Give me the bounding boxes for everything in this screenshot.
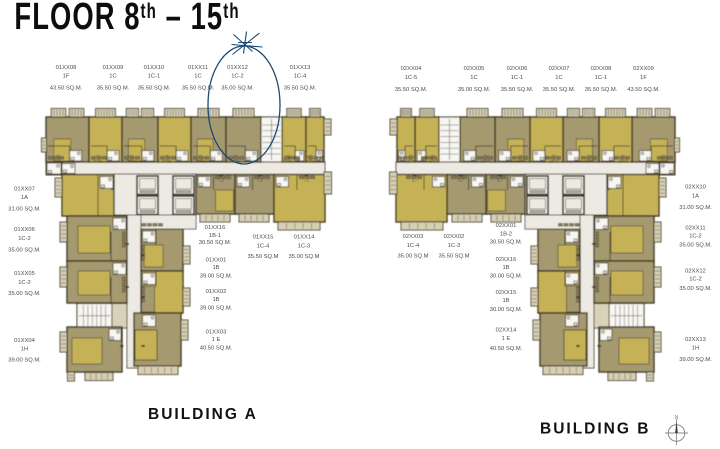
svg-text:35.50 SQ.M: 35.50 SQ.M xyxy=(439,254,470,260)
svg-text:30.00 SQ.M.: 30.00 SQ.M. xyxy=(490,307,523,313)
svg-text:1C-5: 1C-5 xyxy=(405,75,418,81)
svg-text:35.00 SQ.M.: 35.00 SQ.M. xyxy=(679,286,712,292)
svg-text:02XX11: 02XX11 xyxy=(685,226,705,232)
svg-text:35.00 SQ.M.: 35.00 SQ.M. xyxy=(458,87,491,93)
svg-text:02XX05: 02XX05 xyxy=(464,66,485,72)
svg-text:35.00 SQ.M.: 35.00 SQ.M. xyxy=(8,291,41,297)
svg-text:1C-3: 1C-3 xyxy=(298,244,311,250)
svg-text:02XX02: 02XX02 xyxy=(444,234,465,240)
svg-text:01XX13: 01XX13 xyxy=(290,65,311,71)
svg-text:1C: 1C xyxy=(555,75,562,81)
svg-text:1B-2: 1B-2 xyxy=(500,232,512,238)
svg-text:1C-2: 1C-2 xyxy=(689,277,702,283)
svg-text:01XX14: 01XX14 xyxy=(294,235,315,241)
svg-text:02XX08: 02XX08 xyxy=(591,66,612,72)
svg-text:1C-2: 1C-2 xyxy=(18,236,31,242)
svg-text:35.50 SQ.M: 35.50 SQ.M xyxy=(248,254,279,260)
svg-text:30.00 SQ.M.: 30.00 SQ.M. xyxy=(490,274,523,280)
svg-text:02XX09: 02XX09 xyxy=(633,66,654,72)
svg-text:01XX05: 01XX05 xyxy=(14,271,35,277)
svg-text:1A: 1A xyxy=(21,195,28,201)
svg-text:39.00 SQ.M.: 39.00 SQ.M. xyxy=(8,358,41,364)
svg-text:1C-1: 1C-1 xyxy=(595,75,608,81)
svg-text:02XX14: 02XX14 xyxy=(496,328,517,334)
svg-text:1C-2: 1C-2 xyxy=(231,74,244,80)
svg-text:1B: 1B xyxy=(502,265,509,271)
svg-text:FLOOR 8th – 15th: FLOOR 8th – 15th xyxy=(14,0,239,38)
svg-text:1F: 1F xyxy=(640,75,647,81)
svg-text:BUILDING B: BUILDING B xyxy=(540,421,650,438)
svg-text:39.00 SQ.M.: 39.00 SQ.M. xyxy=(679,357,712,363)
svg-text:35.50 SQ.M.: 35.50 SQ.M. xyxy=(284,86,317,92)
svg-text:02XX12: 02XX12 xyxy=(685,269,706,275)
svg-text:1C-4: 1C-4 xyxy=(257,244,270,250)
svg-text:1C-3: 1C-3 xyxy=(448,243,461,249)
svg-text:01XX01: 01XX01 xyxy=(206,258,227,264)
svg-text:31.00 SQ.M.: 31.00 SQ.M. xyxy=(8,207,41,213)
svg-text:1F: 1F xyxy=(63,74,70,80)
svg-text:1C: 1C xyxy=(470,75,477,81)
svg-text:35.50 SQ.M.: 35.50 SQ.M. xyxy=(138,86,171,92)
svg-text:1C-1: 1C-1 xyxy=(511,75,524,81)
svg-text:01XX09: 01XX09 xyxy=(103,65,124,71)
svg-text:43.50 SQ.M.: 43.50 SQ.M. xyxy=(50,86,83,92)
svg-text:35.00 SQ.M.: 35.00 SQ.M. xyxy=(221,86,254,92)
svg-text:02XX03: 02XX03 xyxy=(403,234,424,240)
svg-text:02XX01: 02XX01 xyxy=(496,223,517,229)
svg-text:35.50 SQ.M.: 35.50 SQ.M. xyxy=(543,87,576,93)
svg-text:1C-2: 1C-2 xyxy=(689,234,702,240)
svg-text:35.50 SQ.M.: 35.50 SQ.M. xyxy=(395,87,428,93)
svg-text:1A: 1A xyxy=(692,194,699,200)
svg-text:1B: 1B xyxy=(502,298,509,304)
svg-text:30.50 SQ.M.: 30.50 SQ.M. xyxy=(490,240,523,246)
svg-text:35.50 SQ.M.: 35.50 SQ.M. xyxy=(501,87,534,93)
svg-text:40.50 SQ.M.: 40.50 SQ.M. xyxy=(200,346,233,352)
svg-text:30.50 SQ.M.: 30.50 SQ.M. xyxy=(199,240,232,246)
svg-text:01XX04: 01XX04 xyxy=(14,338,35,344)
svg-text:01XX10: 01XX10 xyxy=(144,65,165,71)
svg-text:35.00 SQ.M.: 35.00 SQ.M. xyxy=(8,248,41,254)
svg-text:1C-2: 1C-2 xyxy=(18,280,31,286)
svg-text:1 E: 1 E xyxy=(502,336,511,342)
svg-text:35.50 SQ.M.: 35.50 SQ.M. xyxy=(97,86,130,92)
svg-text:39.00 SQ.M.: 39.00 SQ.M. xyxy=(200,306,233,312)
svg-text:01XX03: 01XX03 xyxy=(206,330,227,336)
svg-text:1 E: 1 E xyxy=(212,337,221,343)
svg-text:31.00 SQ.M.: 31.00 SQ.M. xyxy=(679,205,712,211)
svg-text:1B: 1B xyxy=(212,265,219,271)
svg-text:35.00 SQ.M: 35.00 SQ.M xyxy=(289,254,320,260)
svg-text:1H: 1H xyxy=(21,347,28,353)
svg-text:35.00 SQ.M.: 35.00 SQ.M. xyxy=(679,243,712,249)
svg-text:1C: 1C xyxy=(109,74,116,80)
svg-text:1B: 1B xyxy=(212,297,219,303)
svg-text:40.50 SQ.M.: 40.50 SQ.M. xyxy=(490,346,523,352)
svg-text:1C: 1C xyxy=(194,74,201,80)
svg-text:02XX13: 02XX13 xyxy=(685,337,706,343)
svg-text:BUILDING A: BUILDING A xyxy=(148,406,258,423)
svg-text:01XX11: 01XX11 xyxy=(188,65,208,71)
svg-text:01XX08: 01XX08 xyxy=(56,65,77,71)
svg-text:1C-4: 1C-4 xyxy=(407,243,420,249)
svg-text:01XX07: 01XX07 xyxy=(14,187,35,193)
svg-text:1H: 1H xyxy=(692,346,699,352)
svg-text:02XX10: 02XX10 xyxy=(685,185,706,191)
svg-text:35.50 SQ.M.: 35.50 SQ.M. xyxy=(585,87,618,93)
svg-text:39.00 SQ.M.: 39.00 SQ.M. xyxy=(200,274,233,280)
svg-text:43.50 SQ.M.: 43.50 SQ.M. xyxy=(627,87,660,93)
svg-text:1C-1: 1C-1 xyxy=(148,74,161,80)
svg-text:35.00 SQ.M: 35.00 SQ.M xyxy=(398,254,429,260)
svg-text:1C-4: 1C-4 xyxy=(294,74,307,80)
svg-text:01XX02: 01XX02 xyxy=(206,289,227,295)
svg-text:02XX16: 02XX16 xyxy=(496,257,517,263)
svg-text:02XX04: 02XX04 xyxy=(401,66,422,72)
svg-text:02XX06: 02XX06 xyxy=(507,66,528,72)
svg-text:02XX07: 02XX07 xyxy=(549,66,570,72)
svg-text:01XX15: 01XX15 xyxy=(253,235,274,241)
svg-text:1B-1: 1B-1 xyxy=(209,233,221,239)
svg-text:02XX15: 02XX15 xyxy=(496,290,517,296)
svg-text:01XX12: 01XX12 xyxy=(227,65,248,71)
svg-text:01XX16: 01XX16 xyxy=(205,225,226,231)
svg-text:01XX06: 01XX06 xyxy=(14,227,35,233)
svg-text:N: N xyxy=(675,415,679,421)
